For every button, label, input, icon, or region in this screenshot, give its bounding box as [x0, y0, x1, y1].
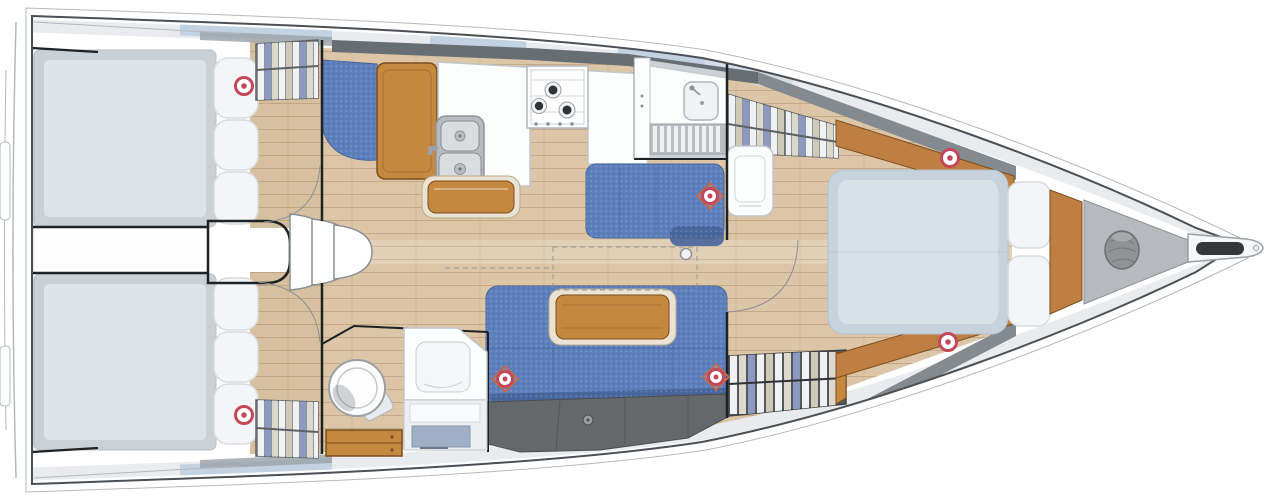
- engine-compartment: [32, 227, 208, 273]
- mast-post: [681, 249, 692, 260]
- galley-island: [422, 176, 520, 218]
- stove-burner: [559, 102, 575, 118]
- transom-step: [0, 346, 10, 406]
- yacht-floor-plan: [0, 0, 1280, 500]
- stove-burner: [532, 99, 547, 114]
- rope-coil: [1105, 231, 1139, 269]
- deck-hatch-marker: [236, 407, 253, 424]
- forward-head: [634, 58, 727, 160]
- starboard-berth-sheen: [44, 284, 206, 440]
- deck-hatch-marker: [942, 150, 959, 167]
- bowsprit: [1188, 234, 1263, 262]
- transom-line: [13, 22, 16, 478]
- hanging-locker-starboard: [256, 400, 318, 458]
- floor-plan-drawing: [0, 0, 1280, 500]
- pillow: [1008, 182, 1050, 248]
- faucet-icon: [428, 146, 438, 151]
- salon-hanging-locker: [728, 350, 846, 416]
- port-berth-sheen: [44, 60, 206, 217]
- hanging-clothes: [256, 400, 318, 458]
- starboard-settee: [586, 164, 724, 246]
- headboard-trim: [1050, 190, 1082, 314]
- stove-burner: [545, 82, 561, 98]
- island-berth: [828, 170, 1008, 334]
- transom-step: [0, 142, 10, 220]
- pillow: [214, 172, 258, 224]
- stove: [527, 66, 588, 128]
- hanging-clothes: [256, 42, 318, 100]
- salon-table: [549, 289, 676, 345]
- head-drawers: [326, 430, 402, 456]
- anchor-roller: [1196, 242, 1244, 255]
- head-sink: [684, 82, 718, 120]
- pillow: [1008, 256, 1050, 326]
- deck-hatch-marker: [236, 78, 253, 95]
- shower-grate: [650, 124, 727, 154]
- head-locker: [634, 58, 650, 158]
- pillow: [214, 332, 258, 382]
- hanging-locker-port: [256, 40, 318, 100]
- faucet-base: [428, 151, 433, 156]
- forward-cabinet: [727, 146, 773, 216]
- deck-hatch-marker: [940, 334, 957, 351]
- head-appliance: [404, 400, 487, 450]
- pillow: [214, 120, 258, 170]
- pillow: [214, 278, 258, 330]
- chart-table: [377, 63, 437, 179]
